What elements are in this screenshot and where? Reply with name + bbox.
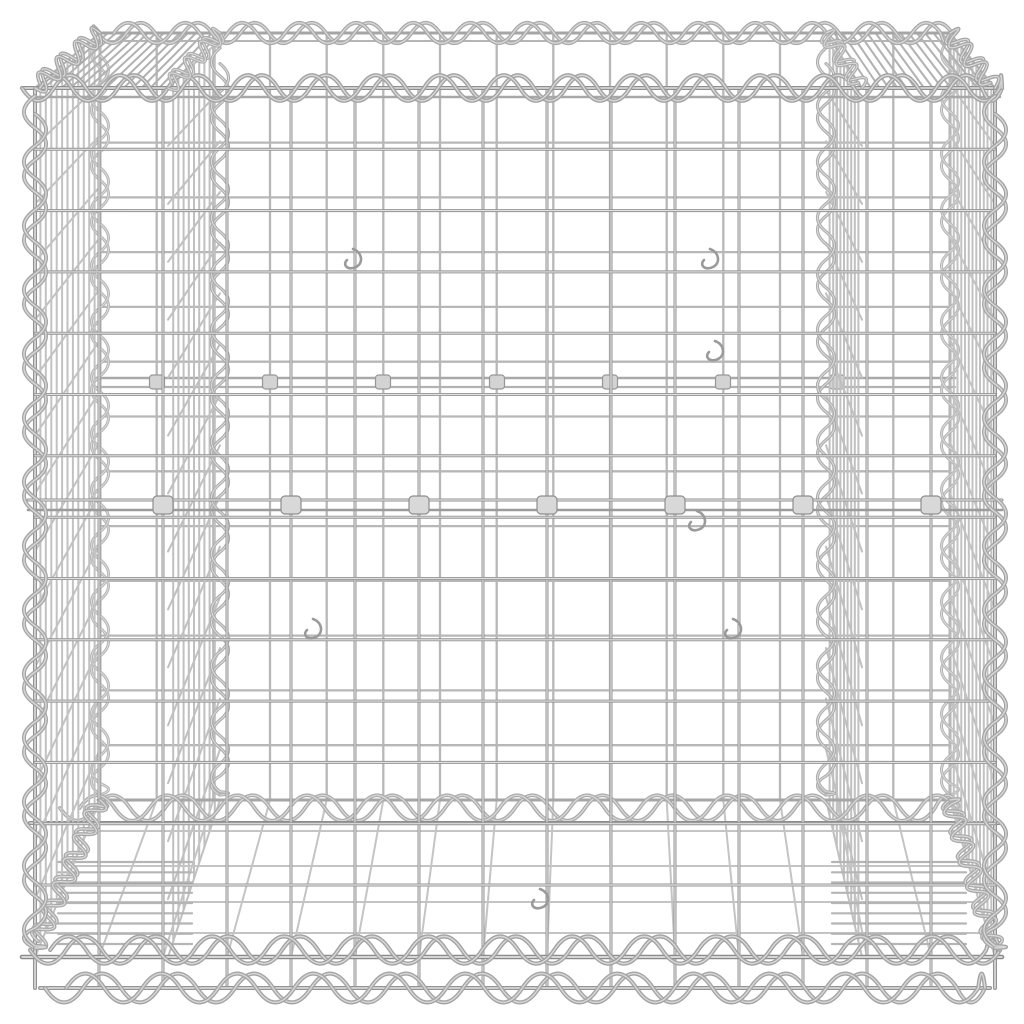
product-image (0, 0, 1024, 1024)
gabion-basket-illustration (0, 0, 1024, 1024)
